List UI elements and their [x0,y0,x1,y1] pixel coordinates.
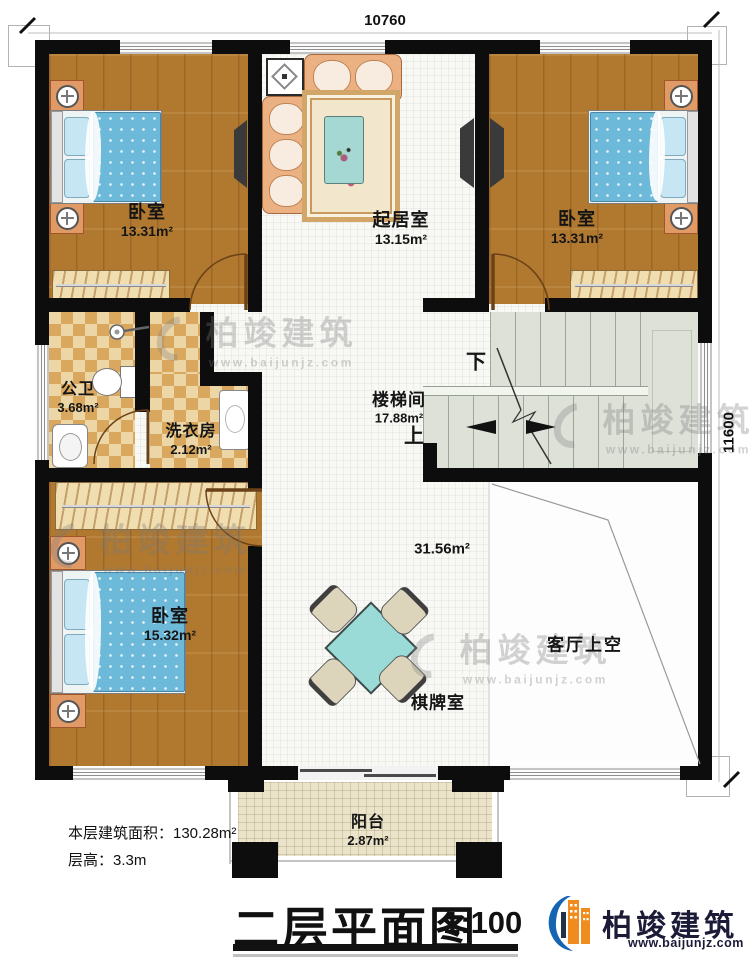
double-bed [588,110,700,204]
floor-plan-sheet: 柏竣建筑www.baijunjz.com 柏竣建筑www.baijunjz.co… [0,0,750,965]
room-label-bedroom-bl: 卧室15.32m² [144,606,196,644]
lamp-icon [670,207,693,230]
room-label-bedroom-tl: 卧室13.31m² [121,202,173,240]
room-label-laundry: 洗衣房2.12m² [165,423,216,457]
brand-logo-icon [543,892,601,954]
void-over-livingroom [489,480,698,768]
stair-landing-outline [652,330,692,452]
wardrobe [52,270,170,300]
balcony-stub-right [452,780,504,792]
window [35,345,49,460]
corner-speaker-icon [266,58,304,96]
wall-bath-laundry-south [35,468,262,482]
wall-bedroomTL-south [35,298,190,312]
window [290,40,385,54]
window [540,40,630,54]
lamp-icon [56,85,79,108]
wall-bathroom-east [135,312,150,412]
tv-icon [460,118,474,188]
lamp-icon [57,542,80,565]
balcony-stub-left [228,780,264,792]
room-label-bedroom-tr: 卧室13.31m² [551,209,603,247]
sink-icon [52,424,88,468]
wall-bedroomBL-east-lower [248,546,262,766]
window [698,343,712,453]
balcony-post-left [232,842,278,878]
brand-url: www.baijunjz.com [628,936,744,950]
room-label-bathroom: 公卫3.68m² [57,381,98,415]
nightstand [664,202,698,234]
balcony-post-right [456,842,502,878]
wall-living-bedroomTR [475,40,489,312]
wall-bedroomTR-south [545,298,712,312]
wall-bedroomBL-east-upper [248,468,262,490]
wall-laundry-east [248,386,262,468]
floor-height-note: 层高：3.3m [68,849,146,870]
room-label-balcony: 阳台2.87m² [347,814,388,848]
tv-icon [490,118,504,188]
coffee-table [324,116,364,184]
room-label-void: 客厅上空 [547,631,623,656]
washing-machine-icon [219,390,250,450]
floor-area-note: 本层建筑面积：130.28m² [68,822,236,843]
room-label-gameroom: 棋牌室 [411,689,465,714]
window [73,766,205,780]
title-underline-thin [233,954,518,957]
wall-laundry-north [200,372,262,386]
sheet-scale: 1:100 [443,905,522,941]
balcony-sliding-door [298,766,438,780]
wall-stair-north-left [423,298,489,312]
window [120,40,212,54]
stair-handrail [423,386,648,396]
wall-laundry-niche-v [200,312,214,376]
dimension-right: 11600 [721,403,738,463]
double-bed [50,110,162,204]
nightstand [50,694,86,728]
dimension-top: 10760 [345,12,425,29]
wardrobe [55,482,257,530]
tv-icon [234,120,247,188]
lamp-icon [56,207,79,230]
nightstand [50,202,84,234]
laundry-floor-upper [150,312,202,378]
nightstand [50,536,86,570]
lamp-icon [670,85,693,108]
title-underline-thick [233,944,518,951]
window [510,766,680,780]
wall-stair-south [423,468,712,482]
stair-down-label: 下 [466,346,486,375]
room-label-living: 起居室13.15m² [373,210,430,248]
wall-bedroomTL-living [248,40,262,312]
nightstand [664,80,698,112]
nightstand [50,80,84,112]
lamp-icon [57,700,80,723]
gameroom-area-label: 31.56m² [414,541,470,558]
stair-up-label: 上 [404,420,424,449]
wardrobe [570,270,698,300]
